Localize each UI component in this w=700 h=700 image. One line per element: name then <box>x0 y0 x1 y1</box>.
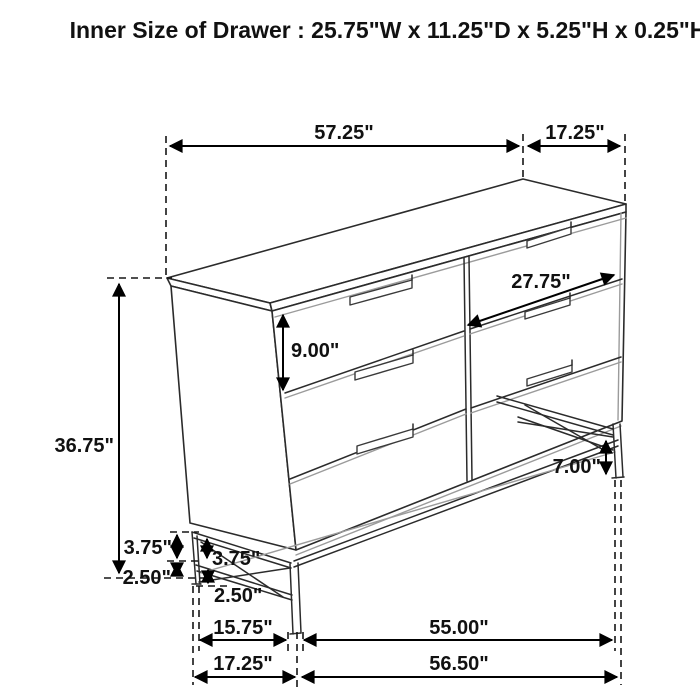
dim-label-inner-span: 55.00" <box>429 617 489 639</box>
dim-label-frame-lower-outer: 2.50" <box>123 567 171 589</box>
dim-label-leg-span: 15.75" <box>213 617 273 639</box>
dim-label-drawer-width: 27.75" <box>511 271 571 293</box>
dim-label-frame-upper-outer: 3.75" <box>124 537 172 559</box>
dim-label-drawer-height: 9.00" <box>291 340 339 362</box>
dim-label-top-depth: 17.25" <box>545 122 605 144</box>
dim-label-top-width: 57.25" <box>314 122 374 144</box>
dim-label-overall-height: 36.75" <box>54 435 114 457</box>
dim-label-base-width: 17.25" <box>213 653 273 675</box>
dresser-dimension-drawing: Inner Size of Drawer : 25.75"W x 11.25"D… <box>0 0 700 700</box>
furniture-dimension-diagram: Inner Size of Drawer : 25.75"W x 11.25"D… <box>0 0 700 700</box>
diagram-title: Inner Size of Drawer : 25.75"W x 11.25"D… <box>70 17 700 43</box>
dim-label-frame-lower-inner: 2.50" <box>214 585 262 607</box>
dim-label-outer-span: 56.50" <box>429 653 489 675</box>
dim-label-leg-height: 7.00" <box>553 456 601 478</box>
dim-label-frame-upper-inner: 3.75" <box>212 548 260 570</box>
